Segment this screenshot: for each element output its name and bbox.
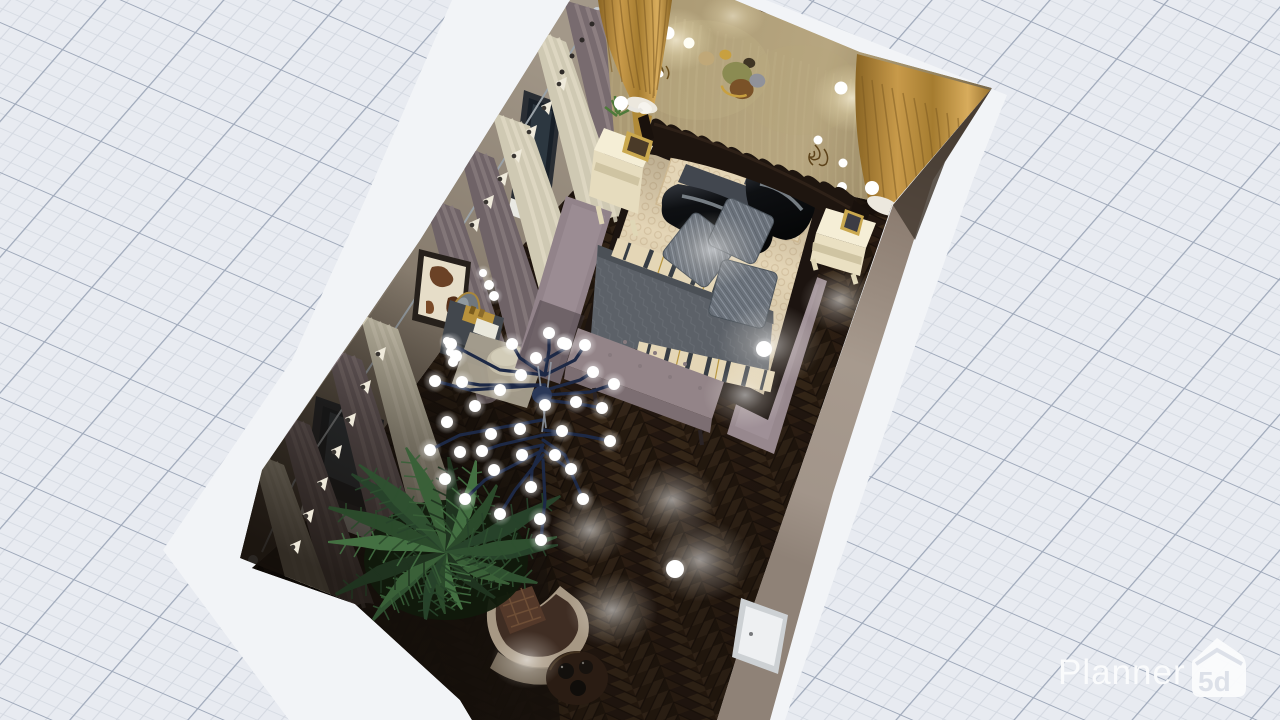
svg-text:Planner: Planner: [1058, 653, 1186, 692]
svg-text:5d: 5d: [1198, 666, 1231, 697]
